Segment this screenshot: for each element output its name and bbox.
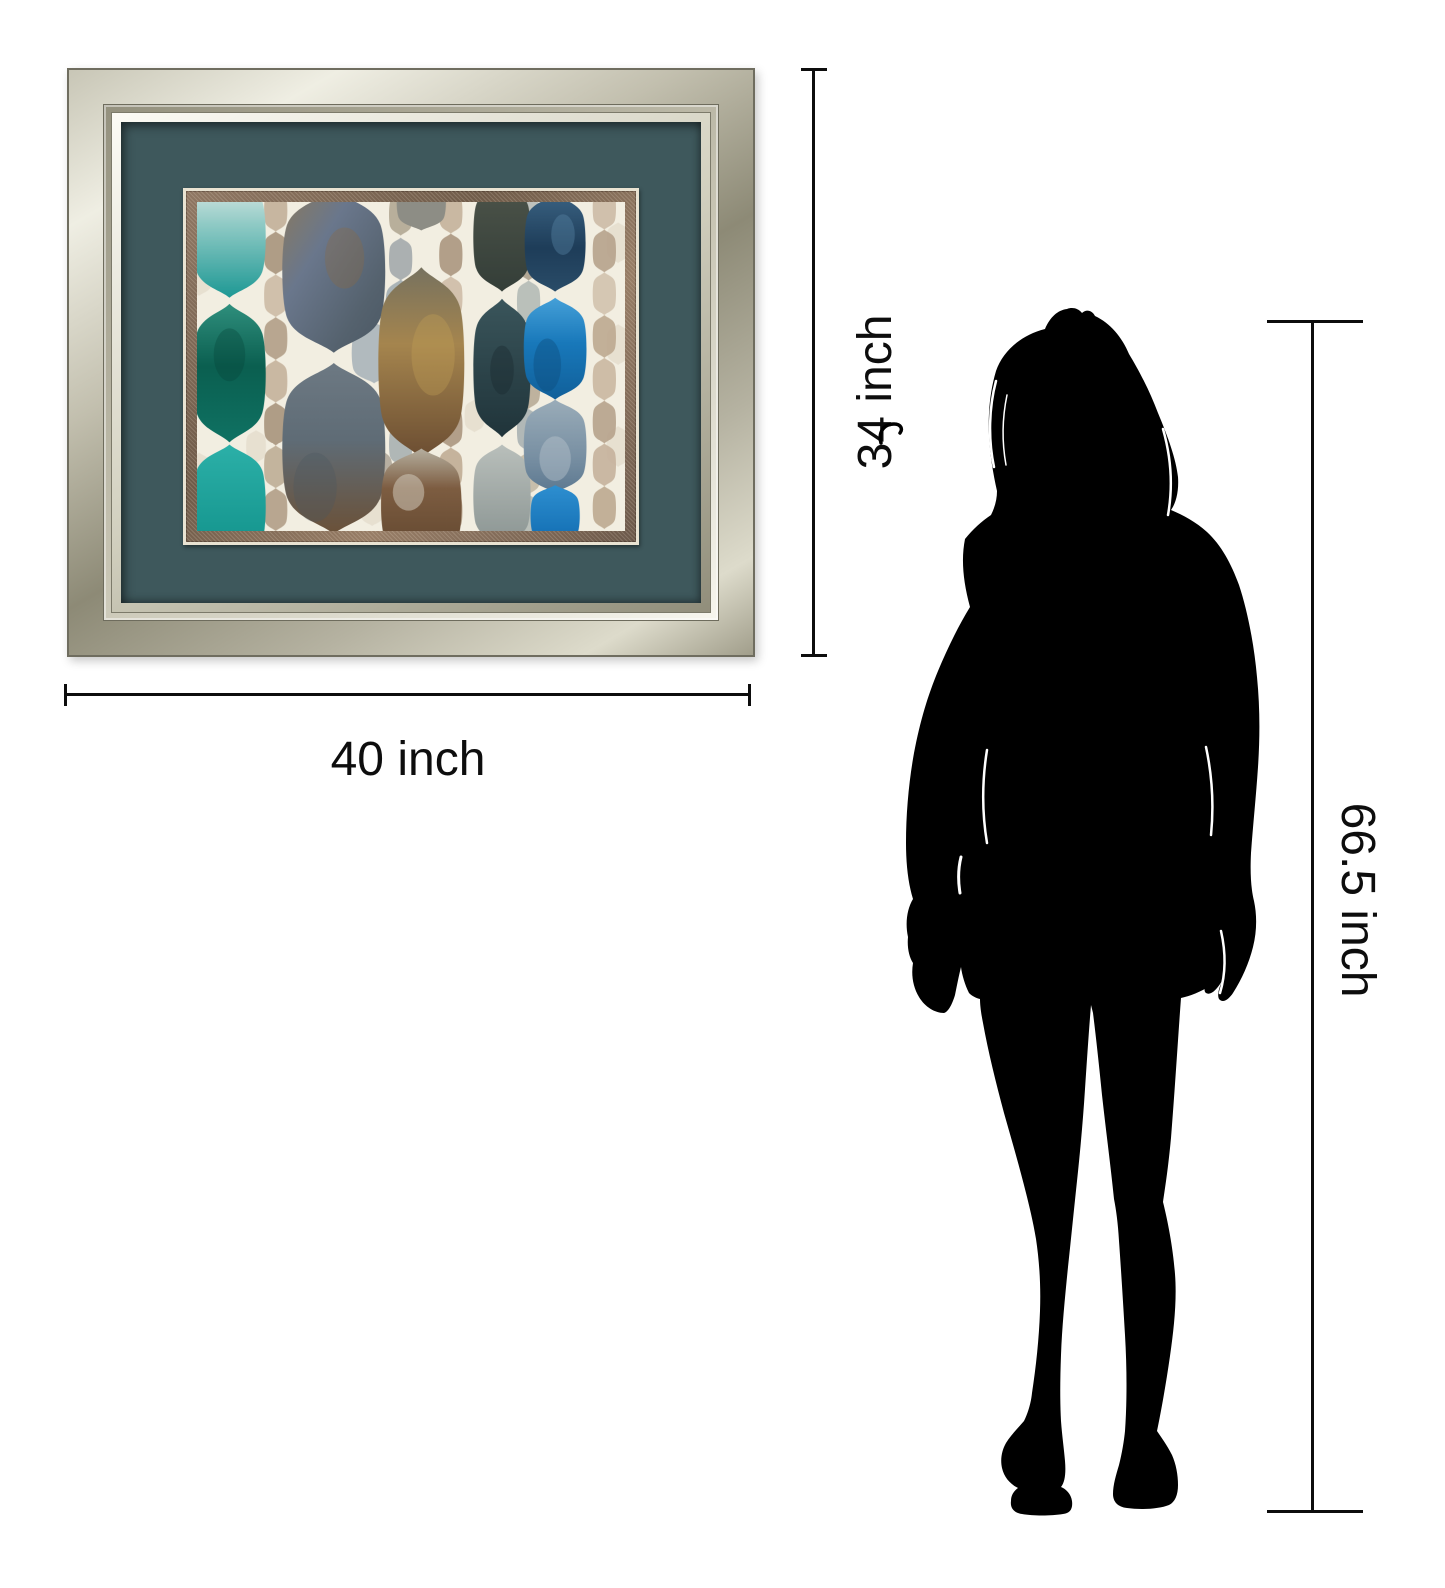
artwork-watercolor-pattern (197, 202, 625, 531)
person-height-label: 66.5 inch (1333, 803, 1381, 998)
mat-board (121, 122, 701, 603)
artwork-print (197, 202, 625, 531)
size-comparison-diagram: 34 inch 40 inch 66.5 inch (0, 0, 1445, 1588)
frame-width-dimension-line (64, 693, 751, 696)
person-height-dimension-line (1311, 322, 1314, 1512)
woman-silhouette (875, 307, 1265, 1517)
fillet-border (183, 188, 639, 545)
frame-height-bottom-tick (801, 654, 827, 657)
person-height-top-tick (1267, 320, 1363, 323)
frame-silver-lip (111, 112, 711, 613)
frame-width-left-tick (64, 684, 67, 706)
frame-width-label: 40 inch (331, 736, 486, 784)
frame-height-dimension-line (812, 70, 815, 657)
woman-silhouette-body (906, 308, 1259, 1515)
frame-height-top-tick (801, 68, 827, 71)
frame-inner-moulding (103, 104, 719, 621)
frame-width-right-tick (748, 684, 751, 706)
picture-frame (67, 68, 755, 657)
person-height-bottom-tick (1267, 1510, 1363, 1513)
woman-flyaway-hair-strand (880, 424, 901, 443)
